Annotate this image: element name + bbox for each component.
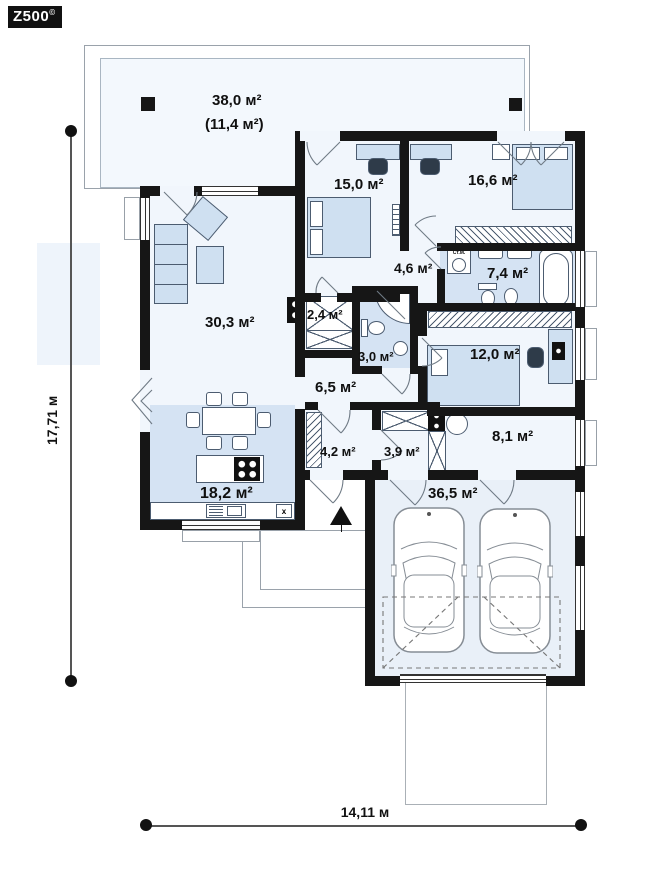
entrance-arrow-stem <box>341 524 342 532</box>
wall-bedroom3-left-2 <box>418 366 427 402</box>
coffee-table <box>196 246 224 284</box>
wall-entry-bottom-2 <box>343 470 372 480</box>
washing-machine-door <box>452 258 466 272</box>
bedroom3-pillow <box>431 349 448 376</box>
wc-toilet-bowl <box>368 321 385 335</box>
room-label-wc: 3,0 м² <box>358 349 394 364</box>
dining-table <box>202 407 256 435</box>
kitchen-window <box>182 520 260 530</box>
driveway <box>405 677 547 805</box>
copyright-mark: © <box>49 8 55 17</box>
dimension-line-vertical <box>70 131 72 681</box>
room-label-living: 30,3 м² <box>205 314 254 331</box>
garage-door <box>400 674 546 683</box>
wall-right-1 <box>575 131 585 251</box>
terrace-area-label: 38,0 м² <box>212 92 261 109</box>
dining-chair-2 <box>232 392 248 406</box>
bedroom1-radiator <box>392 204 400 236</box>
wall-bedroom3-utility <box>427 407 575 416</box>
bedroom1-pillow-1 <box>310 201 323 227</box>
entry-wardrobe <box>306 412 322 468</box>
wall-central-upper <box>295 141 305 377</box>
brand-logo: Z500© <box>8 6 62 28</box>
bedroom3-computer <box>552 342 565 360</box>
wall-hallway-bottom-1 <box>305 402 318 410</box>
wall-wc-right <box>410 286 418 374</box>
wall-left-2 <box>140 240 150 370</box>
wall-garage-left <box>365 480 375 686</box>
wall-bedrooms-divider <box>400 141 409 251</box>
bedroom3-window <box>575 328 585 380</box>
cooktop <box>234 457 260 481</box>
bedroom3-chair <box>527 347 544 368</box>
room-label-entry: 4,2 м² <box>320 444 356 459</box>
living-top-window <box>202 186 258 196</box>
wall-living-top-2 <box>194 186 202 196</box>
wall-bedroom1-bottom-2 <box>337 293 400 302</box>
wall-garage-top-3 <box>516 470 585 480</box>
room-label-bathroom: 7,4 м² <box>487 265 528 282</box>
counter-mark-box: x <box>276 504 292 518</box>
terrace-area-note-label: (11,4 м²) <box>205 116 264 133</box>
corridor-closet-top <box>382 411 430 431</box>
wall-garage-top-2 <box>428 470 478 480</box>
wall-left-3 <box>140 432 150 530</box>
room-label-bedroom1: 15,0 м² <box>334 176 383 193</box>
dimension-dot-top <box>65 125 77 137</box>
wall-living-top-1 <box>140 186 160 196</box>
wall-central-lower <box>295 409 305 530</box>
dining-chair-3 <box>206 436 222 450</box>
bathroom-window-sill <box>585 251 597 307</box>
bathroom-window <box>575 251 585 307</box>
bedroom1-pillow-2 <box>310 229 323 255</box>
wall-bathroom-top <box>437 243 575 251</box>
entrance-arrow-icon <box>330 506 352 525</box>
wall-right-5 <box>575 536 585 566</box>
wall-top-1 <box>295 131 300 141</box>
terrace-column-left <box>141 97 155 111</box>
bedroom2-nightstand <box>492 144 510 160</box>
room-label-garage: 36,5 м² <box>428 485 477 502</box>
wall-bathroom-bottom <box>415 303 575 311</box>
utility-window <box>575 420 585 466</box>
wc-toilet-tank <box>361 319 368 337</box>
room-label-hall: 4,6 м² <box>394 260 432 276</box>
sink-drainer <box>209 506 223 516</box>
dimension-dot-bottom <box>65 675 77 687</box>
wall-right-2 <box>575 307 585 328</box>
garage-window-2 <box>575 566 585 630</box>
dining-chair-5 <box>186 412 200 428</box>
dimension-dot-right <box>575 819 587 831</box>
water-heater <box>446 413 468 435</box>
toilet-tank <box>478 283 497 290</box>
wall-wardrobe-bottom <box>305 350 352 358</box>
wall-wc-bottom <box>352 366 382 374</box>
wall-entry-corridor-1 <box>372 410 381 430</box>
dining-chair-1 <box>206 392 222 406</box>
utility-window-sill <box>585 420 597 466</box>
room-label-bedroom3: 12,0 м² <box>470 346 519 363</box>
wall-entry-corridor-2 <box>372 460 381 470</box>
wall-hallway-bottom-2 <box>350 402 440 410</box>
room-label-kitchen: 18,2 м² <box>200 485 253 503</box>
dimension-dot-left <box>140 819 152 831</box>
garage-window-1 <box>575 492 585 536</box>
porch-outline-inner <box>260 530 367 590</box>
bedroom3-wardrobe <box>428 311 572 328</box>
bathtub-inner <box>543 253 569 307</box>
wall-garage-bottom-2 <box>546 676 585 686</box>
wall-wc-top <box>352 286 418 294</box>
dining-chair-6 <box>257 412 271 428</box>
bedroom3-window-sill <box>585 328 597 380</box>
landscape-patch <box>37 243 100 365</box>
wall-bathroom-left <box>437 269 445 303</box>
room-label-bedroom2: 16,6 м² <box>468 172 517 189</box>
bedroom2-chair <box>420 158 440 175</box>
wall-bedroom1-bottom-1 <box>305 293 321 302</box>
dimension-label-width: 14,11 м <box>320 804 410 820</box>
wall-top-2 <box>340 131 497 141</box>
sink-basin <box>227 506 242 516</box>
wardrobe-24-lower <box>306 330 354 349</box>
floor-plan: Z500© 38,0 м² (11,4 м²) <box>0 0 655 887</box>
bedroom2-pillow-1 <box>516 147 540 160</box>
terrace-column-right <box>509 98 522 111</box>
dimension-label-height: 17,71 м <box>44 355 60 445</box>
sofa <box>154 224 188 304</box>
wall-right-3 <box>575 380 585 420</box>
room-label-hallway: 6,5 м² <box>315 379 356 396</box>
room-label-wardrobe: 2,4 м² <box>307 307 343 322</box>
floor-garage <box>375 480 575 676</box>
dining-chair-4 <box>232 436 248 450</box>
kitchen-window-sill <box>182 530 260 542</box>
electric-box-2 <box>428 421 445 431</box>
wall-entry-bottom-1 <box>305 470 310 480</box>
living-window <box>140 198 150 240</box>
corridor-closet-side <box>428 431 446 471</box>
wc-sink <box>393 341 408 356</box>
brand-name: Z500 <box>13 8 49 25</box>
dimension-line-horizontal <box>146 825 581 827</box>
wall-bedroom3-left-1 <box>418 311 427 336</box>
room-label-corridor: 3,9 м² <box>384 444 420 459</box>
bedroom1-chair <box>368 158 388 175</box>
bedroom2-pillow-2 <box>544 147 568 160</box>
wall-kitchen-bottom-1 <box>140 520 182 530</box>
living-window-sill <box>124 197 140 240</box>
room-label-utility: 8,1 м² <box>492 428 533 445</box>
entrance-door <box>310 480 343 503</box>
